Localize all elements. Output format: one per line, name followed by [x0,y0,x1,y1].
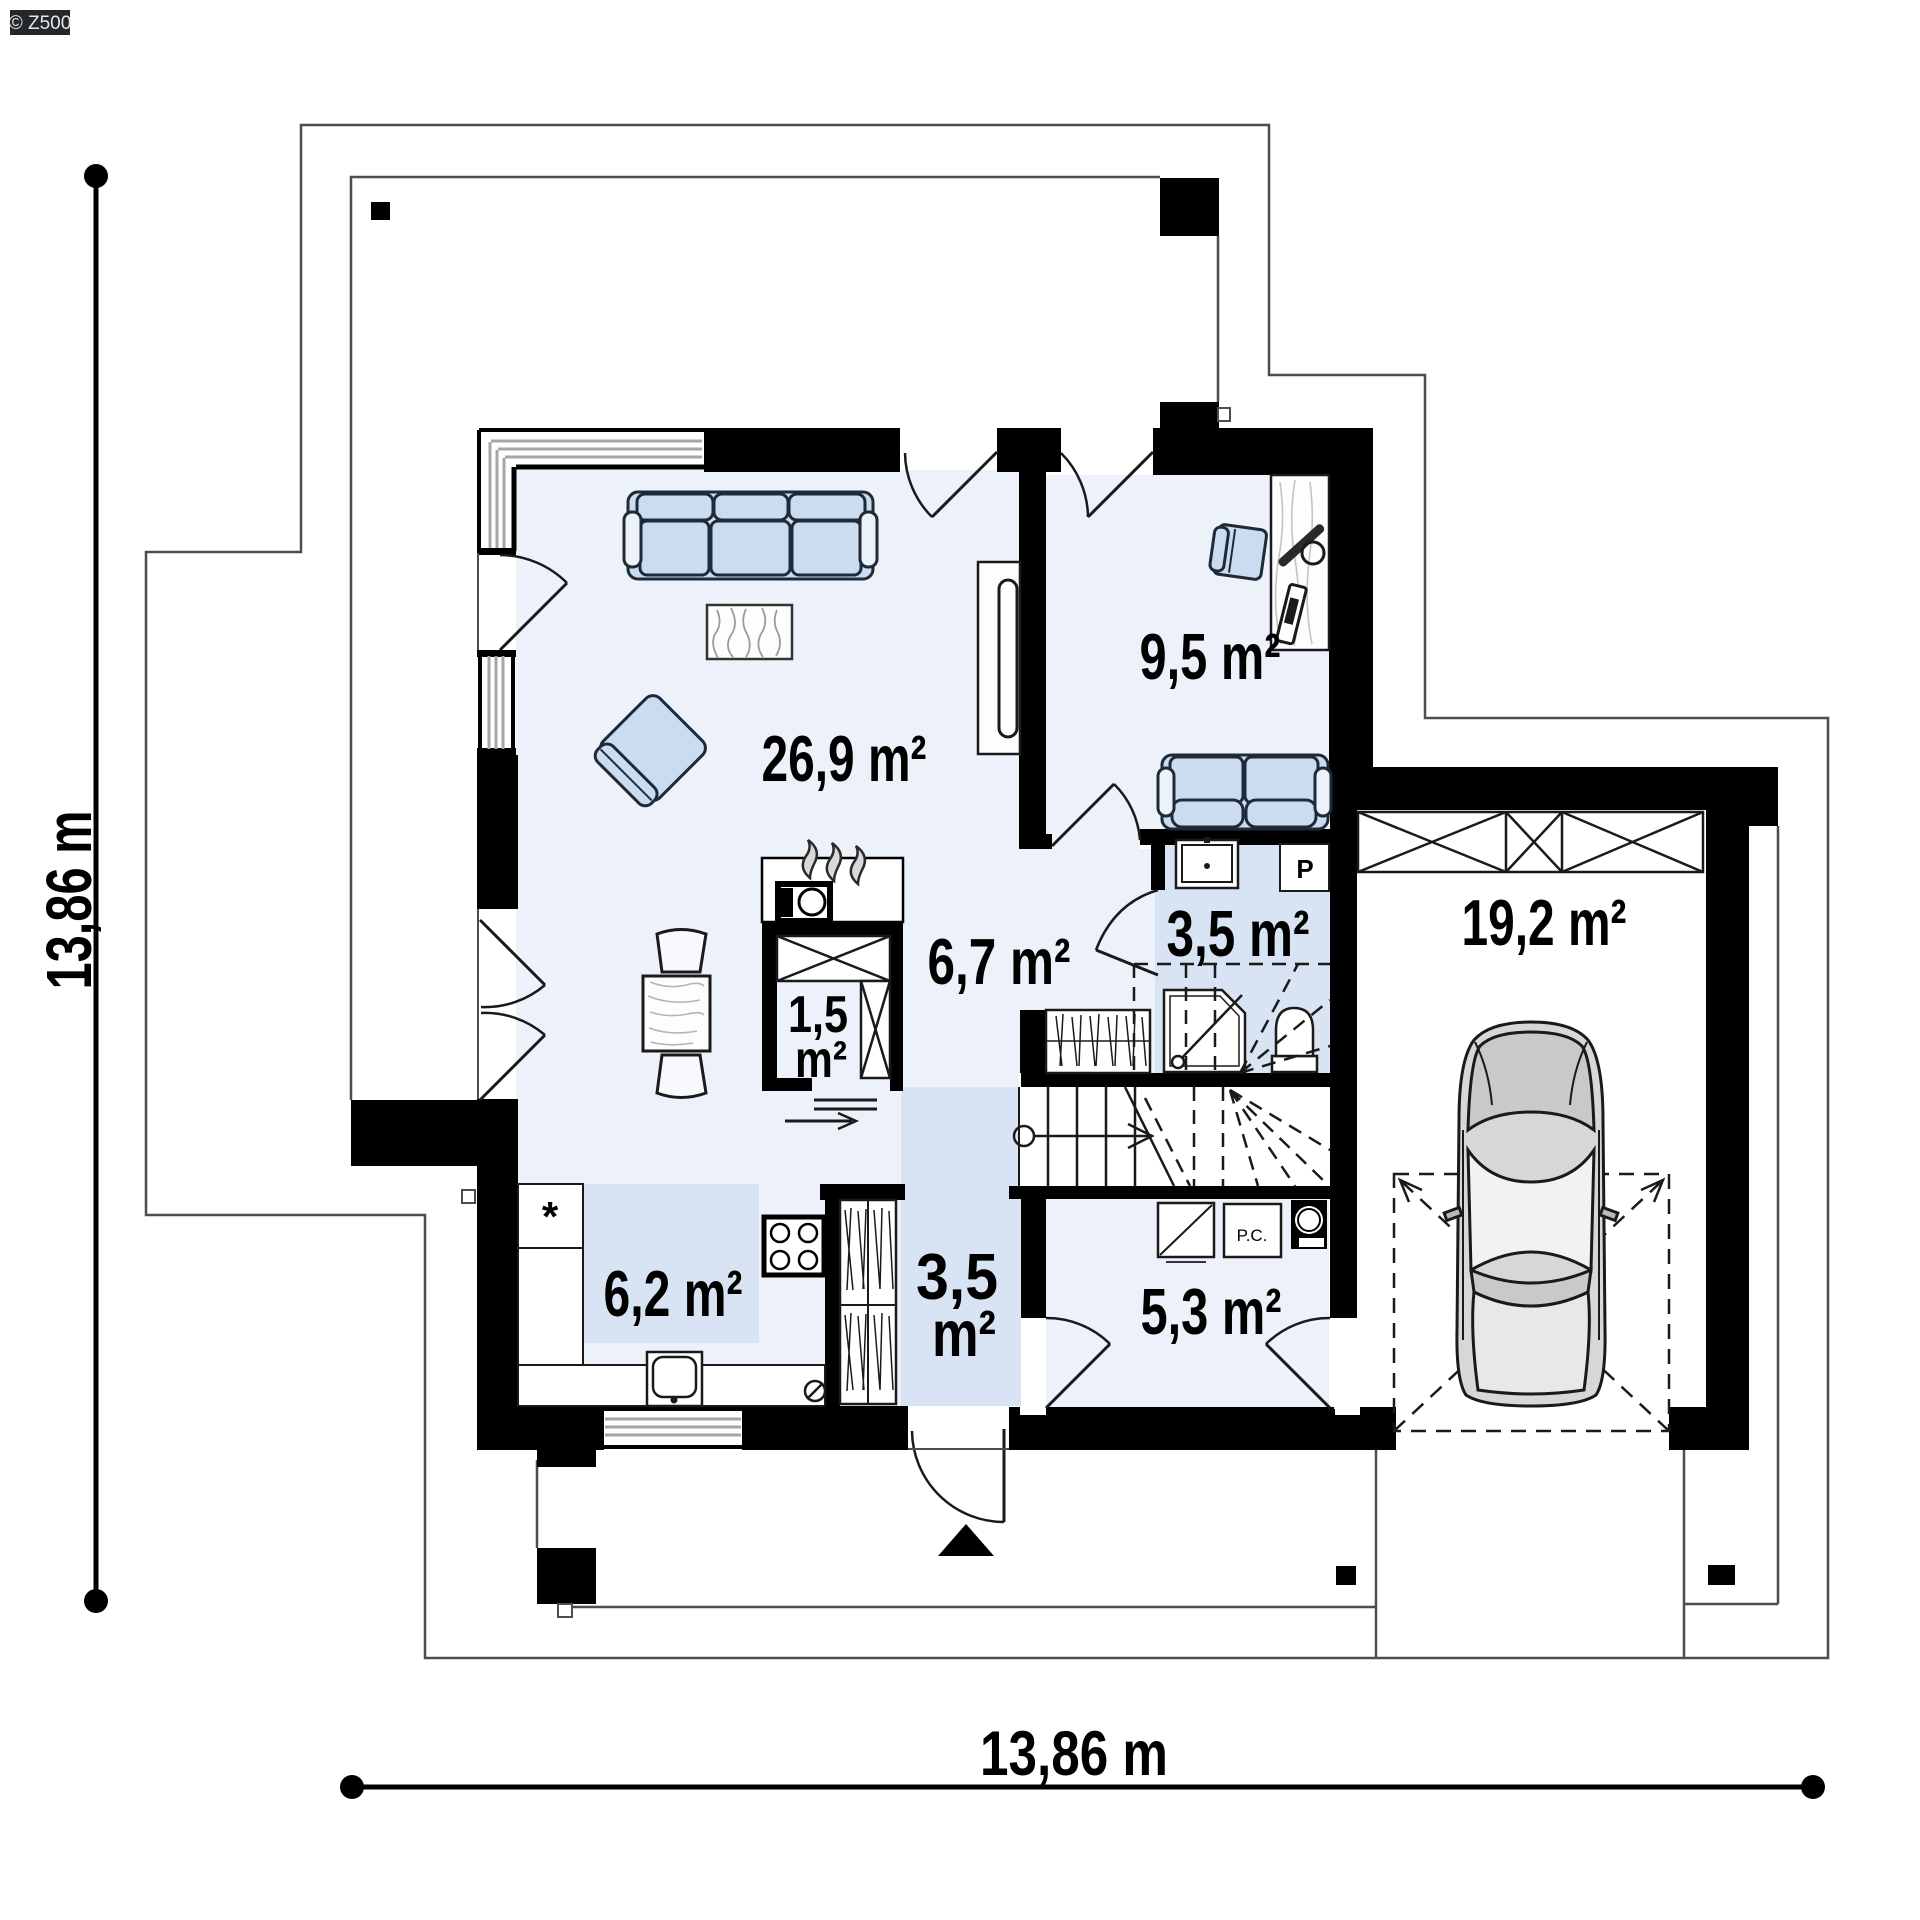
svg-text:P.C.: P.C. [1237,1226,1268,1245]
svg-text:P: P [1296,854,1313,884]
svg-text:5,3 m²: 5,3 m² [1141,1275,1282,1348]
svg-text:*: * [542,1193,559,1240]
svg-text:13,86 m: 13,86 m [33,811,105,990]
svg-text:m²: m² [795,1031,847,1089]
svg-text:m²: m² [932,1297,996,1370]
svg-text:6,7 m²: 6,7 m² [928,925,1071,998]
svg-text:19,2 m²: 19,2 m² [1462,886,1627,959]
svg-text:9,5 m²: 9,5 m² [1140,620,1281,693]
svg-text:6,2 m²: 6,2 m² [604,1257,743,1330]
svg-text:3,5 m²: 3,5 m² [1167,897,1310,970]
svg-text:26,9 m²: 26,9 m² [762,722,927,795]
svg-text:13,86 m: 13,86 m [980,1719,1168,1789]
svg-text:© Z500: © Z500 [9,13,72,34]
